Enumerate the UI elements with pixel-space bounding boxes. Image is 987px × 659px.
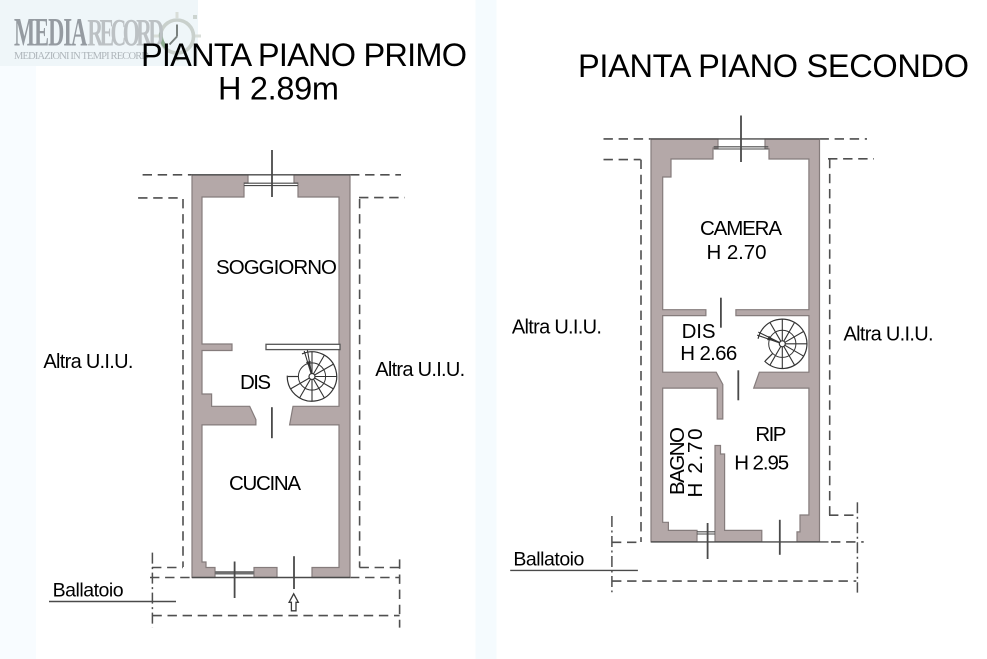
svg-text:Altra U.I.U.: Altra U.I.U. [43,351,133,373]
svg-text:Ballatoio: Ballatoio [513,549,584,571]
svg-text:MEDIA: MEDIA [14,11,88,55]
svg-text:MEDIAZIONI IN TEMPI RECORD: MEDIAZIONI IN TEMPI RECORD [14,51,149,62]
svg-text:CAMERA: CAMERA [700,217,782,240]
svg-text:Ballatoio: Ballatoio [53,580,124,602]
svg-text:H 2.89m: H 2.89m [218,71,339,107]
svg-text:Altra U.I.U.: Altra U.I.U. [375,359,465,381]
svg-text:PIANTA PIANO SECONDO: PIANTA PIANO SECONDO [578,48,969,84]
svg-text:H 2.70: H 2.70 [707,241,767,264]
svg-text:H 2.95: H 2.95 [734,452,789,475]
svg-text:SOGGIORNO: SOGGIORNO [216,256,337,279]
svg-text:DIS: DIS [682,320,716,343]
svg-text:H 2.66: H 2.66 [680,342,737,365]
svg-text:DIS: DIS [240,371,271,394]
svg-text:PIANTA PIANO PRIMO: PIANTA PIANO PRIMO [141,37,467,73]
svg-text:H 2.70: H 2.70 [684,429,707,498]
svg-text:RIP: RIP [755,423,786,446]
svg-text:Altra U.I.U.: Altra U.I.U. [844,324,934,346]
svg-text:Altra U.I.U.: Altra U.I.U. [512,317,602,339]
svg-text:CUCINA: CUCINA [229,472,301,495]
